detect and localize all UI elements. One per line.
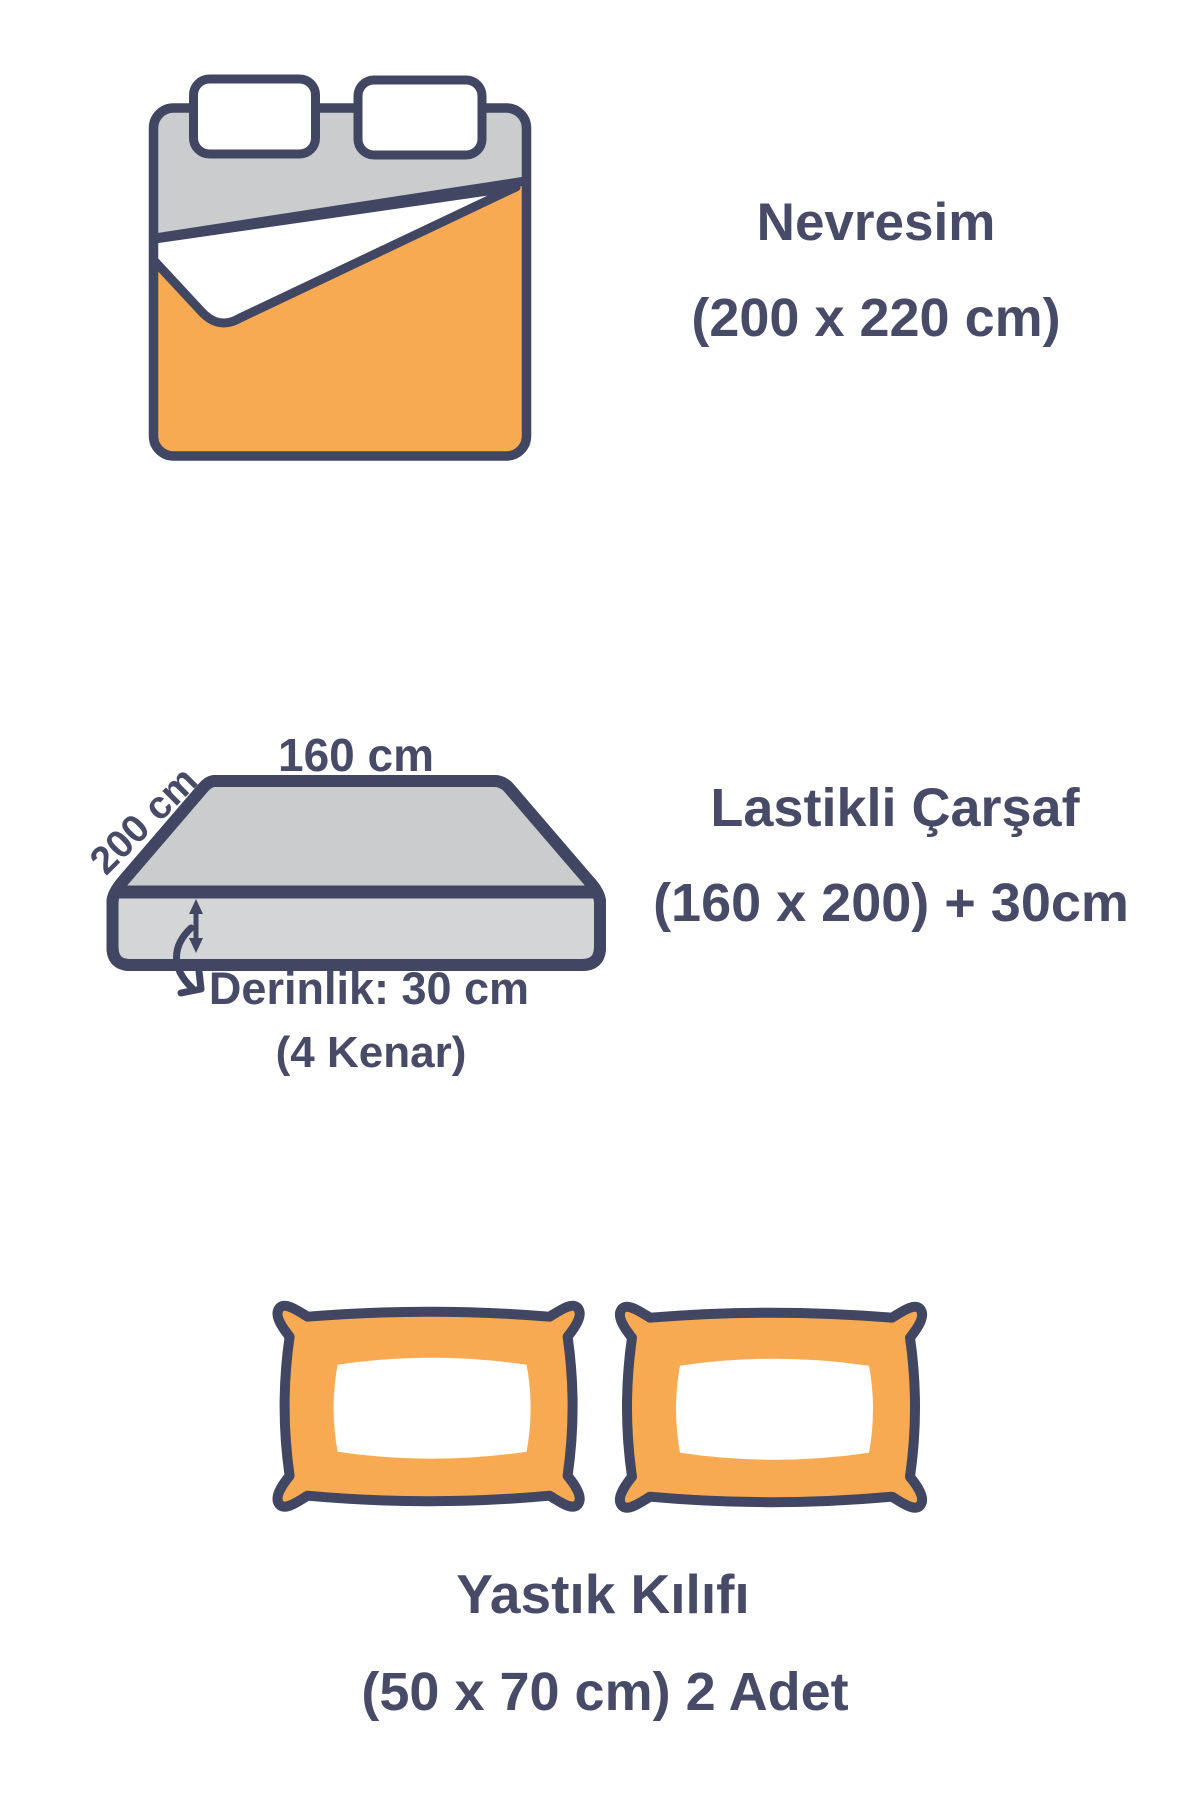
svg-text:(200 x 220 cm): (200 x 220 cm) — [691, 288, 1060, 348]
svg-text:160 cm: 160 cm — [278, 729, 434, 781]
svg-text:Yastık Kılıfı: Yastık Kılıfı — [456, 1563, 749, 1625]
svg-text:(160 x 200) + 30cm: (160 x 200) + 30cm — [653, 873, 1129, 933]
svg-text:Derinlik: 30 cm: Derinlik: 30 cm — [209, 963, 529, 1014]
svg-text:Lastikli Çarşaf: Lastikli Çarşaf — [710, 778, 1080, 838]
svg-text:(50 x 70 cm) 2 Adet: (50 x 70 cm) 2 Adet — [361, 1662, 848, 1722]
svg-text:Nevresim: Nevresim — [757, 193, 996, 252]
svg-text:(4 Kenar): (4 Kenar) — [276, 1028, 467, 1077]
